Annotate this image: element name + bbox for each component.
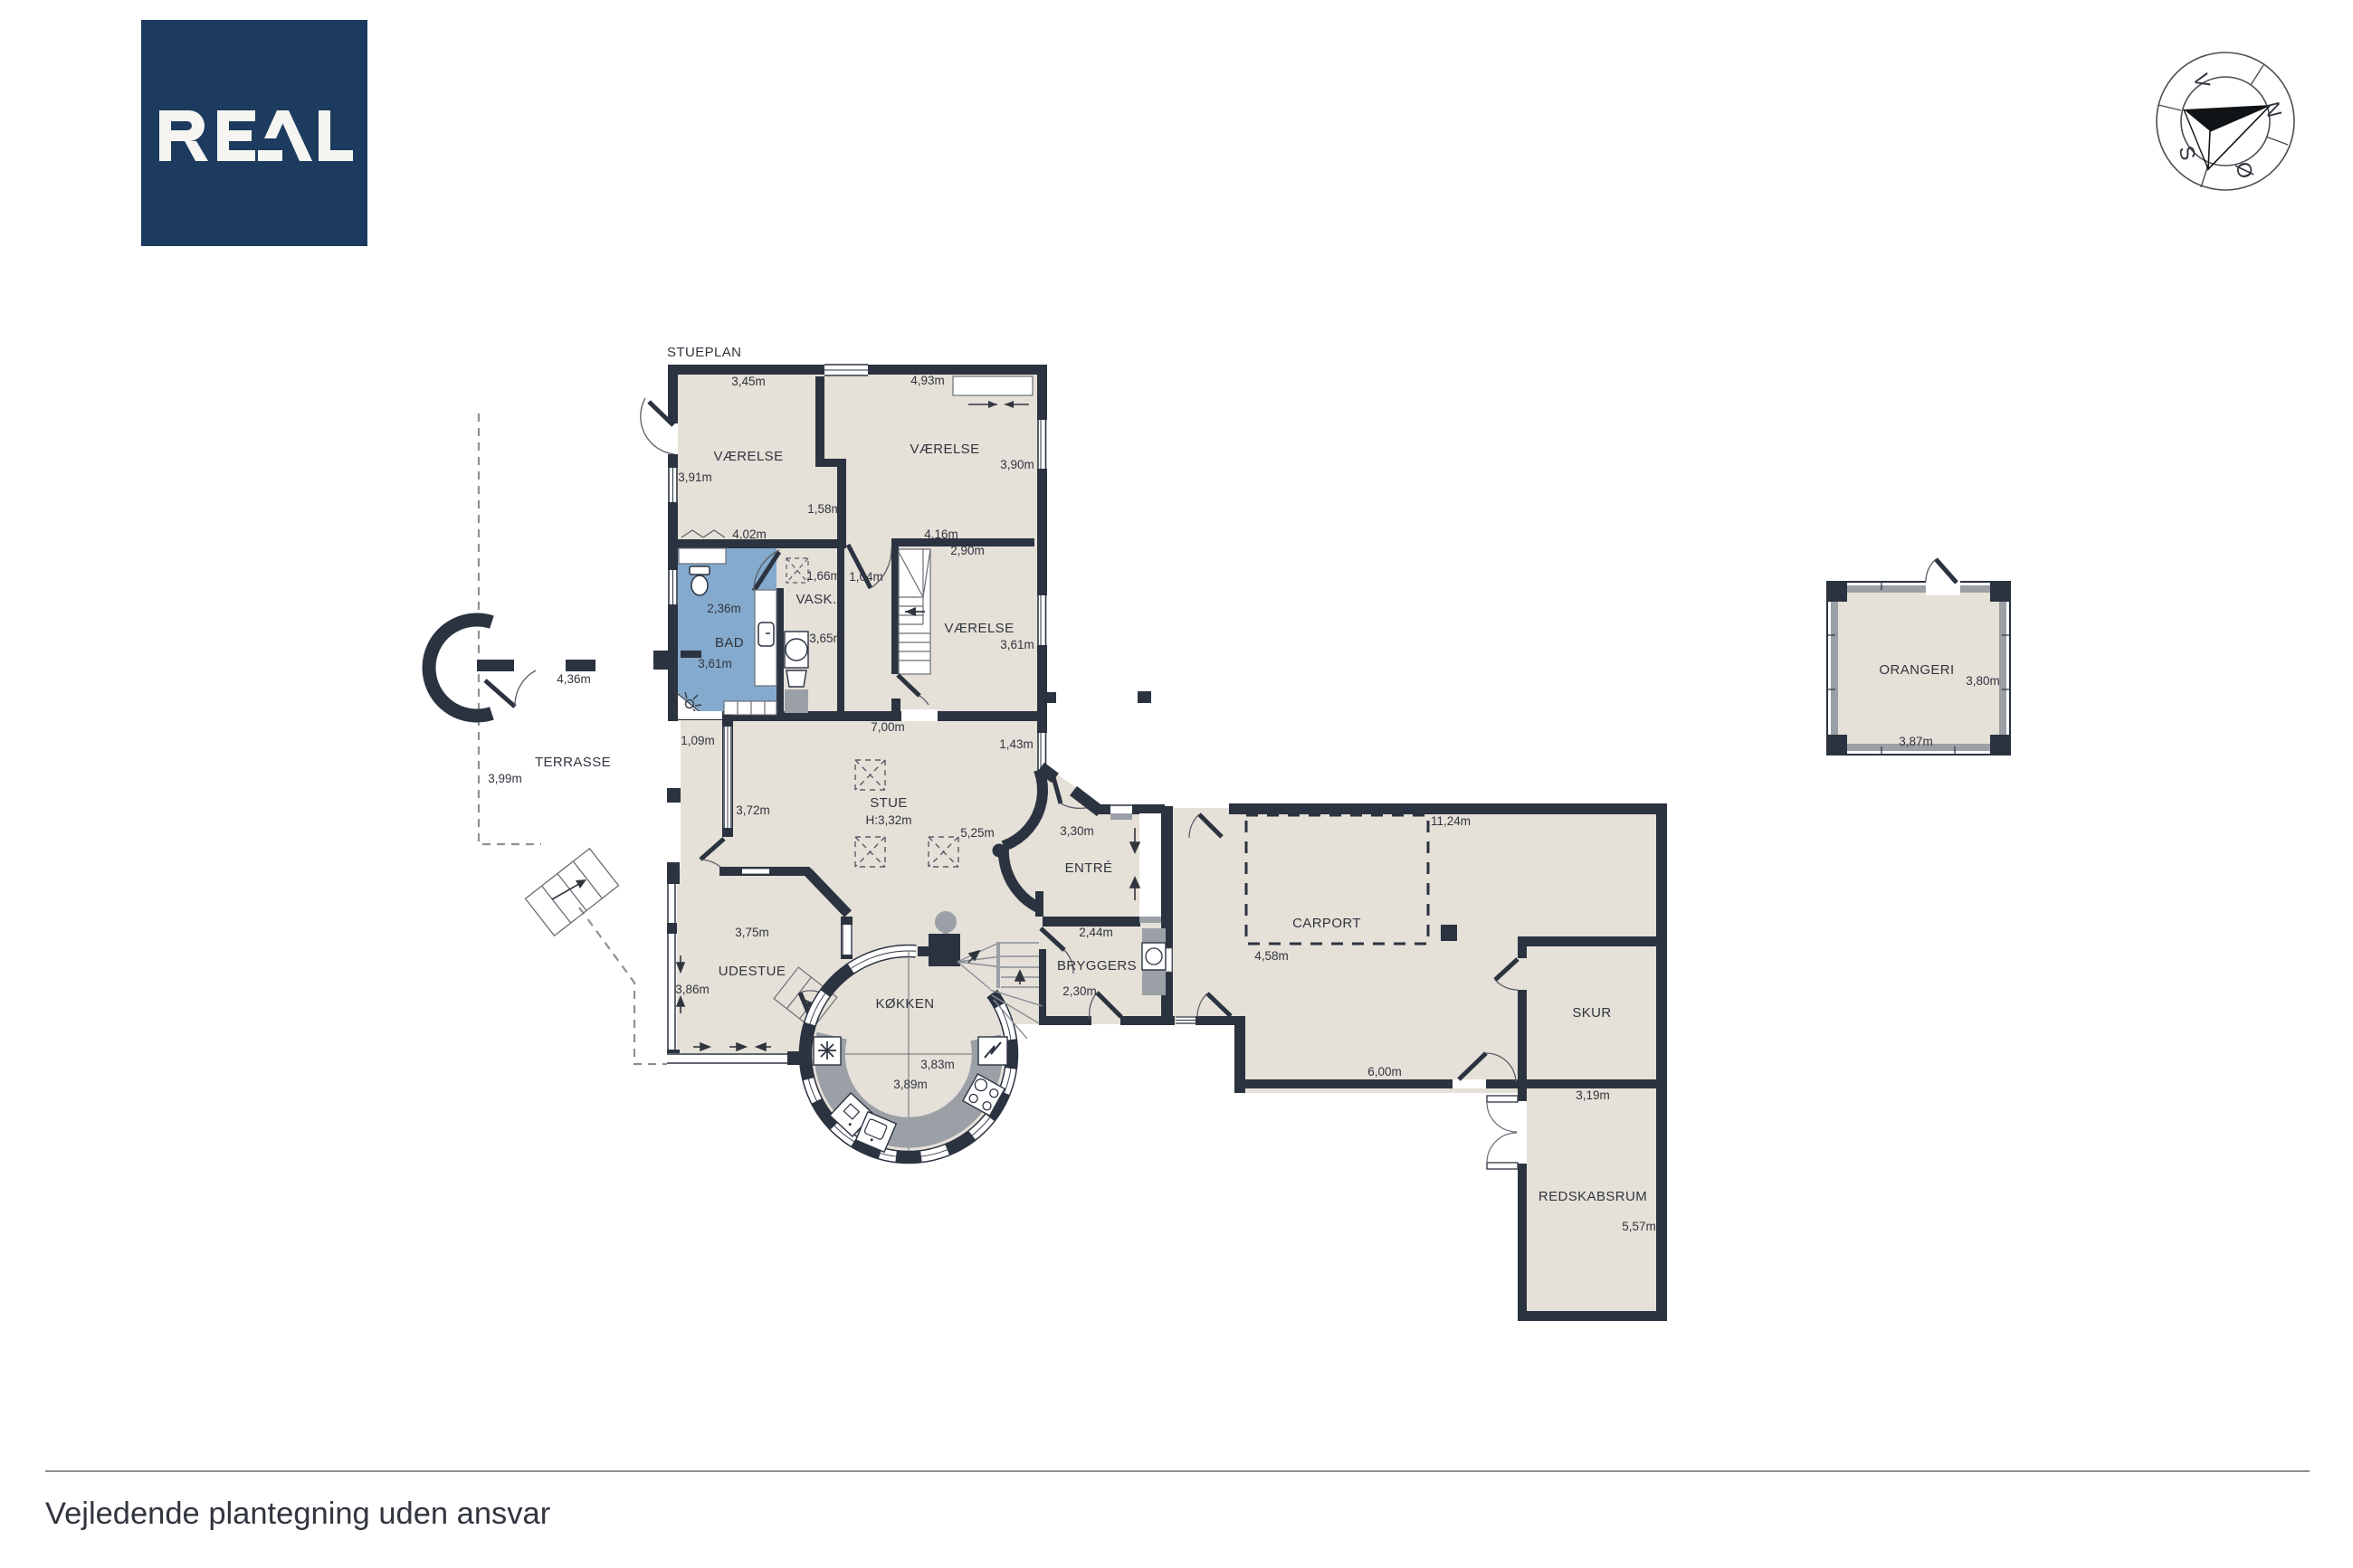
- svg-text:2,30m: 2,30m: [1062, 984, 1097, 998]
- svg-text:1,58m: 1,58m: [807, 502, 842, 516]
- svg-text:3,90m: 3,90m: [1000, 458, 1034, 471]
- svg-text:2,36m: 2,36m: [707, 602, 741, 615]
- svg-text:H:3,32m: H:3,32m: [865, 813, 911, 827]
- svg-text:4,02m: 4,02m: [732, 527, 767, 541]
- svg-text:4,16m: 4,16m: [924, 527, 958, 541]
- svg-text:3,89m: 3,89m: [893, 1078, 928, 1091]
- svg-text:VÆRELSE: VÆRELSE: [714, 449, 784, 464]
- svg-text:3,45m: 3,45m: [731, 375, 766, 388]
- svg-text:2,44m: 2,44m: [1079, 926, 1113, 939]
- svg-text:KØKKEN: KØKKEN: [876, 996, 935, 1012]
- svg-text:VÆRELSE: VÆRELSE: [945, 621, 1015, 636]
- svg-text:3,80m: 3,80m: [1966, 674, 2000, 688]
- svg-text:TERRASSE: TERRASSE: [535, 755, 611, 770]
- svg-text:7,00m: 7,00m: [871, 720, 905, 734]
- svg-text:Vejledende plantegning uden an: Vejledende plantegning uden ansvar: [45, 1497, 550, 1531]
- svg-text:VÆRELSE: VÆRELSE: [910, 442, 980, 457]
- svg-text:11,24m: 11,24m: [1431, 814, 1471, 828]
- svg-text:1,43m: 1,43m: [999, 737, 1034, 751]
- svg-text:VASK.: VASK.: [795, 592, 836, 607]
- svg-text:SKUR: SKUR: [1572, 1005, 1611, 1021]
- svg-text:5,25m: 5,25m: [960, 826, 995, 840]
- svg-text:3,30m: 3,30m: [1060, 824, 1094, 838]
- svg-text:BRYGGERS: BRYGGERS: [1057, 958, 1137, 974]
- svg-text:3,61m: 3,61m: [1000, 638, 1034, 651]
- svg-text:3,75m: 3,75m: [735, 926, 769, 939]
- svg-text:3,87m: 3,87m: [1899, 735, 1933, 748]
- svg-text:6,00m: 6,00m: [1367, 1065, 1402, 1079]
- svg-text:5,57m: 5,57m: [1622, 1220, 1656, 1233]
- svg-text:1,66m: 1,66m: [806, 569, 841, 583]
- svg-text:4,58m: 4,58m: [1254, 949, 1289, 963]
- svg-text:2,90m: 2,90m: [950, 544, 985, 557]
- svg-text:4,36m: 4,36m: [557, 672, 591, 686]
- svg-text:3,99m: 3,99m: [488, 772, 522, 785]
- svg-text:3,83m: 3,83m: [920, 1058, 955, 1071]
- svg-text:ENTRÉ: ENTRÉ: [1065, 860, 1113, 876]
- svg-text:3,91m: 3,91m: [678, 470, 712, 484]
- svg-text:3,86m: 3,86m: [675, 983, 710, 996]
- svg-text:1,09m: 1,09m: [681, 734, 715, 747]
- svg-text:UDESTUE: UDESTUE: [719, 964, 786, 979]
- svg-text:BAD: BAD: [715, 635, 744, 651]
- svg-text:3,19m: 3,19m: [1576, 1088, 1610, 1102]
- svg-text:1,04m: 1,04m: [849, 570, 883, 584]
- svg-text:ORANGERI: ORANGERI: [1879, 662, 1954, 678]
- svg-text:STUEPLAN: STUEPLAN: [667, 345, 741, 360]
- svg-text:CARPORT: CARPORT: [1292, 916, 1361, 931]
- svg-text:REDSKABSRUM: REDSKABSRUM: [1538, 1189, 1647, 1204]
- svg-text:3,61m: 3,61m: [698, 657, 732, 670]
- svg-text:STUE: STUE: [870, 795, 908, 811]
- svg-text:4,93m: 4,93m: [910, 374, 945, 387]
- svg-text:3,72m: 3,72m: [736, 803, 770, 817]
- svg-text:3,65m: 3,65m: [809, 632, 843, 645]
